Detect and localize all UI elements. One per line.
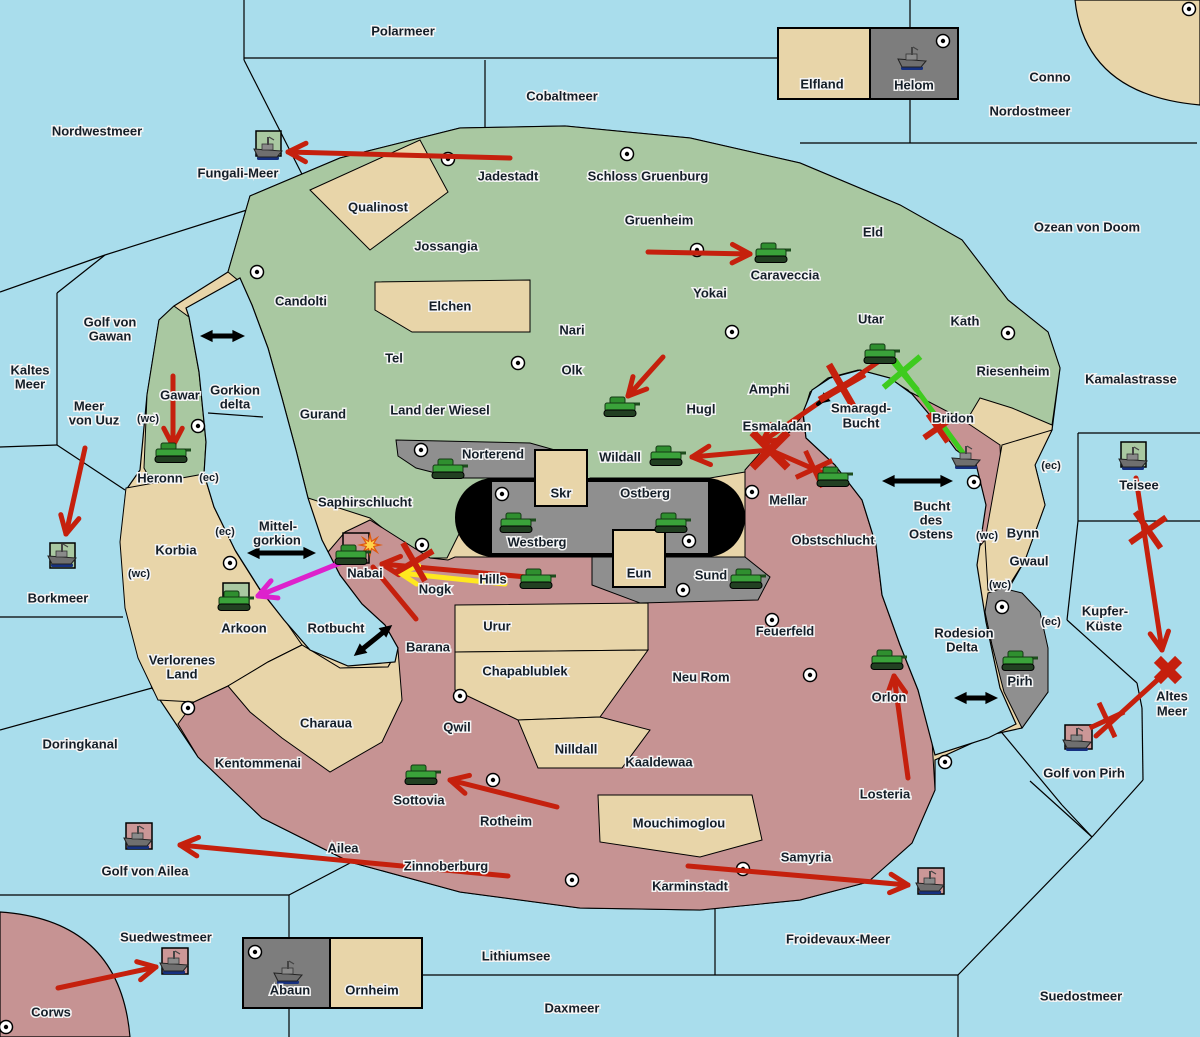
sea-label: Froidevaux-Meer	[786, 931, 890, 946]
region-label: Sund	[695, 567, 728, 582]
region-label: Ailea	[327, 840, 359, 855]
region-label: Bridon	[932, 410, 974, 425]
sea-label: Suedostmeer	[1040, 988, 1122, 1003]
region-label: Charaua	[300, 715, 353, 730]
sea-label: Gawan	[89, 328, 132, 343]
sea-label: Cobaltmeer	[526, 88, 598, 103]
region-label: Yokai	[693, 285, 727, 300]
region-label: Elfland	[800, 76, 843, 91]
coast-marker-label: (wc)	[976, 530, 998, 542]
region-label: Land der Wiesel	[390, 402, 490, 417]
region-label: Orlon	[872, 689, 907, 704]
region-label: Chapablublek	[482, 663, 568, 678]
town-marker-dot	[186, 706, 190, 710]
coast-marker-label: (wc)	[989, 579, 1011, 591]
sea-label: Delta	[946, 639, 979, 654]
sea-label: Kaltes	[10, 362, 49, 377]
region-label: Gurand	[300, 406, 346, 421]
town-marker-dot	[491, 778, 495, 782]
region-label: Nari	[559, 322, 584, 337]
region-label: Gwaul	[1009, 553, 1048, 568]
region-label: Heronn	[137, 470, 183, 485]
region-label: Mellar	[769, 492, 807, 507]
town-marker-dot	[570, 878, 574, 882]
region-label: Nabai	[347, 565, 382, 580]
sea-label: Bucht	[843, 415, 881, 430]
ornheim-box[interactable]	[330, 938, 422, 1008]
sea-label: Golf von Ailea	[102, 863, 190, 878]
town-marker-dot	[228, 561, 232, 565]
region-label: Barana	[406, 639, 451, 654]
region-label: Korbia	[155, 542, 197, 557]
sea-label: Ozean von Doom	[1034, 219, 1140, 234]
region-label: Saphirschlucht	[318, 494, 413, 509]
town-marker-dot	[1006, 331, 1010, 335]
region-label: Schloss Gruenburg	[588, 168, 709, 183]
region-label: Skr	[551, 485, 572, 500]
town-marker-dot	[730, 330, 734, 334]
town-marker-dot	[196, 424, 200, 428]
sea-label: des	[920, 512, 942, 527]
sea-label: Meer	[15, 376, 45, 391]
region-label: Pirh	[1007, 673, 1032, 688]
sea-label: Nordostmeer	[990, 103, 1071, 118]
sea-label: Rotbucht	[307, 620, 365, 635]
sea-label: Daxmeer	[545, 1000, 600, 1015]
region-label: Kath	[951, 313, 980, 328]
region-label: Urur	[483, 618, 510, 633]
sea-label: Polarmeer	[371, 23, 435, 38]
region-label: Hills	[479, 571, 506, 586]
coast-marker-label: (ec)	[1041, 616, 1061, 628]
region-label: Obstschlucht	[791, 532, 875, 547]
region-label: Kentommenai	[215, 755, 301, 770]
town-marker-dot	[681, 588, 685, 592]
town-marker-dot	[687, 539, 691, 543]
sea-label: Golf von	[84, 314, 137, 329]
region-label: Abaun	[270, 982, 311, 997]
region-label: Kaaldewaa	[625, 754, 693, 769]
region-label: Jossangia	[414, 238, 478, 253]
sea-label: Doringkanal	[42, 736, 117, 751]
region-label: Qwil	[443, 719, 470, 734]
region-label: Feuerfeld	[756, 623, 815, 638]
region-label: Wildall	[599, 449, 641, 464]
town-marker-dot	[516, 361, 520, 365]
sea-label: Golf von Pirh	[1043, 765, 1125, 780]
town-marker-dot	[941, 39, 945, 43]
coast-marker-label: (wc)	[128, 568, 150, 580]
region-label: Norterend	[462, 446, 524, 461]
arrowhead	[258, 596, 278, 598]
region-label: Caraveccia	[751, 267, 820, 282]
region-label: Ostberg	[620, 485, 670, 500]
region-label: Karminstadt	[652, 878, 729, 893]
region-label: Westberg	[508, 534, 567, 549]
region-label: Olk	[562, 362, 584, 377]
sea-label: Meer	[1157, 703, 1187, 718]
town-marker-dot	[770, 618, 774, 622]
sea-label: Küste	[1086, 618, 1122, 633]
town-marker-dot	[1000, 605, 1004, 609]
sea-label: Teisee	[1119, 477, 1159, 492]
sea-label: Fungali-Meer	[198, 165, 279, 180]
region-label: Ornheim	[345, 982, 398, 997]
region-label: Rotheim	[480, 813, 532, 828]
coast-marker-label: (ec)	[215, 526, 235, 538]
coast-marker-label: (ec)	[1041, 460, 1061, 472]
region-label: Zinnoberburg	[404, 858, 489, 873]
region-label: Eun	[627, 565, 652, 580]
region-label: Losteria	[860, 786, 911, 801]
region-label: Neu Rom	[672, 669, 729, 684]
town-marker-dot	[458, 694, 462, 698]
region-label: Amphi	[749, 381, 789, 396]
sea-label: Rodesion	[934, 625, 993, 640]
sea-label: gorkion	[253, 532, 301, 547]
region-label: Jadestadt	[478, 168, 539, 183]
sea-label: delta	[220, 396, 251, 411]
sea-label: Bucht	[914, 498, 952, 513]
town-marker-dot	[419, 448, 423, 452]
move-arrow	[648, 252, 750, 254]
sea-label: von Uuz	[69, 412, 120, 427]
region-label: Verlorenes	[149, 652, 216, 667]
region-label: Nilldall	[555, 741, 598, 756]
region-label: Esmaladan	[743, 418, 812, 433]
sea-label: Altes	[1156, 688, 1188, 703]
map-canvas: PolarmeerNordwestmeerCobaltmeerNordostme…	[0, 0, 1200, 1037]
sea-label: Nordwestmeer	[52, 123, 142, 138]
town-marker-dot	[625, 152, 629, 156]
town-marker-dot	[972, 480, 976, 484]
sea-label: Suedwestmeer	[120, 929, 212, 944]
region-label: Helom	[894, 77, 934, 92]
region-label: Nogk	[419, 581, 452, 596]
town-marker-dot	[420, 543, 424, 547]
region-label: Mouchimoglou	[633, 815, 725, 830]
region-label: Conno	[1029, 69, 1070, 84]
coast-marker-label: (ec)	[199, 472, 219, 484]
region-label: Qualinost	[348, 199, 409, 214]
town-marker-dot	[500, 492, 504, 496]
region-label: Candolti	[275, 293, 327, 308]
sea-label: Gorkion	[210, 382, 260, 397]
sea-label: Meer	[74, 398, 104, 413]
sea-label: Ostens	[909, 526, 953, 541]
town-marker-dot	[1187, 7, 1191, 11]
region-label: Samyria	[781, 849, 832, 864]
sea-label: Borkmeer	[28, 590, 89, 605]
sea-label: Kamalastrasse	[1085, 371, 1177, 386]
sea-label: Kupfer-	[1082, 603, 1128, 618]
sea-label: Smaragd-	[831, 400, 891, 415]
region-label: Sottovia	[393, 792, 445, 807]
region-label: Tel	[385, 350, 403, 365]
region-label: Land	[166, 666, 197, 681]
region-label: Bynn	[1007, 525, 1040, 540]
region-label: Corws	[31, 1004, 71, 1019]
region-label: Utar	[858, 311, 884, 326]
region-label: Gruenheim	[625, 212, 694, 227]
sea-label: Lithiumsee	[482, 948, 551, 963]
region-label: Eld	[863, 224, 883, 239]
town-marker-dot	[253, 950, 257, 954]
coast-marker-label: (wc)	[137, 413, 159, 425]
town-marker-dot	[255, 270, 259, 274]
region-label: Elchen	[429, 298, 472, 313]
town-marker-dot	[808, 673, 812, 677]
war-map: PolarmeerNordwestmeerCobaltmeerNordostme…	[0, 0, 1200, 1037]
sea-label: Mittel-	[259, 518, 297, 533]
town-marker-dot	[4, 1025, 8, 1029]
region-label: Hugl	[687, 401, 716, 416]
region-label: Arkoon	[221, 620, 267, 635]
town-marker-dot	[943, 760, 947, 764]
explosion-icon-core	[363, 538, 377, 552]
region-label: Gawar	[160, 387, 200, 402]
region-label: Riesenheim	[977, 363, 1050, 378]
town-marker-dot	[750, 490, 754, 494]
